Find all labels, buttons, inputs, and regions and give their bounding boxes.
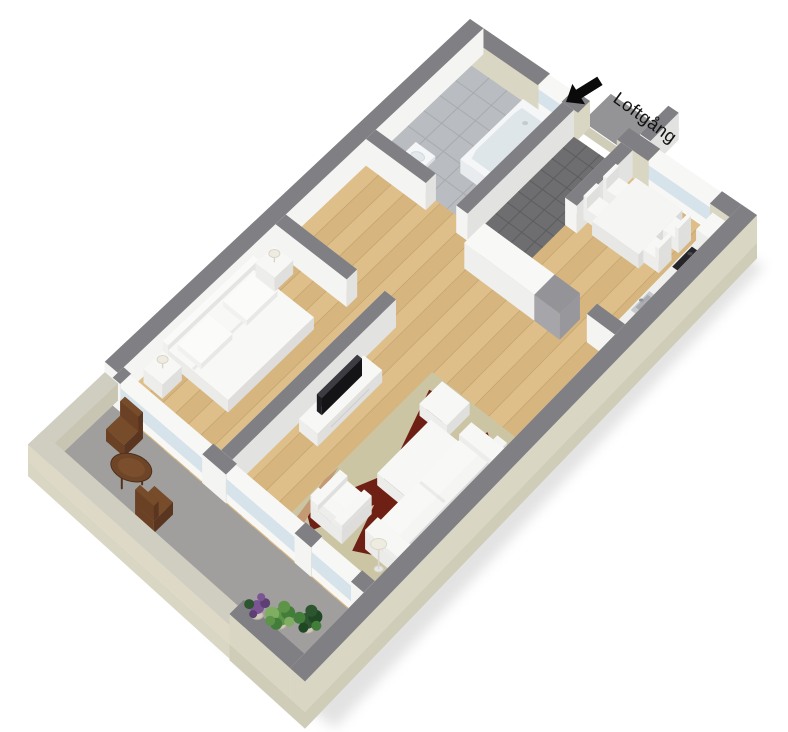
dining-chair-back-face bbox=[675, 226, 679, 240]
plant-foliage bbox=[249, 610, 257, 618]
plant-foliage bbox=[284, 617, 294, 627]
plant-foliage bbox=[293, 612, 305, 624]
floor-plan-3d-render: Loftgång bbox=[0, 0, 788, 732]
faucet bbox=[639, 299, 643, 302]
plant-foliage bbox=[257, 593, 265, 601]
plant-foliage bbox=[311, 621, 321, 631]
dining-chair-back-face bbox=[584, 196, 587, 210]
dining-chair-back-face bbox=[655, 246, 658, 260]
plant-foliage bbox=[244, 599, 254, 609]
table-lamp bbox=[157, 355, 168, 363]
floor-plan-page: Loftgång bbox=[0, 0, 788, 732]
dining-chair-back-face bbox=[603, 176, 606, 190]
table-lamp bbox=[269, 250, 280, 258]
plant-foliage bbox=[298, 623, 308, 633]
plant-foliage bbox=[278, 601, 290, 613]
plant-foliage bbox=[305, 605, 317, 617]
floor-lamp-shade bbox=[371, 539, 387, 550]
plant-foliage bbox=[265, 616, 275, 626]
bathtub-drain bbox=[522, 121, 528, 125]
burner bbox=[687, 252, 692, 256]
